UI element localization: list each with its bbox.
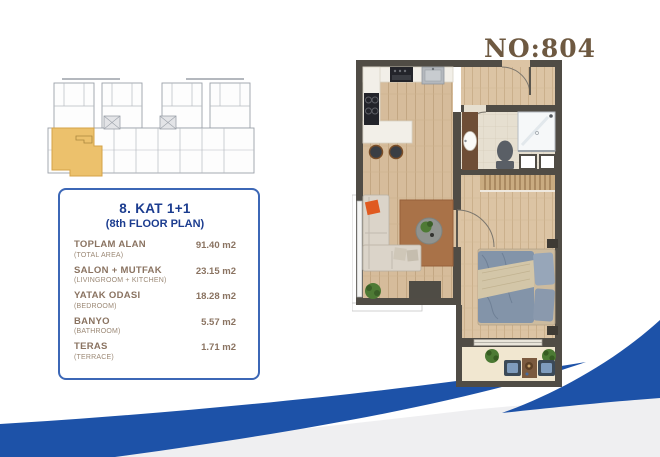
gray-wave xyxy=(0,397,660,457)
area-value: 91.40 m2 xyxy=(196,239,236,259)
tv-unit xyxy=(409,281,441,298)
area-sublabel: (TERRACE) xyxy=(74,354,114,361)
area-sublabel: (TOTAL AREA) xyxy=(74,252,146,259)
area-row-bedroom: YATAK ODASI (BEDROOM) 18.28 m2 xyxy=(74,290,236,310)
card-subtitle: (8th FLOOR PLAN) xyxy=(74,218,236,230)
cooktop xyxy=(364,93,379,125)
orange-pillow xyxy=(365,200,380,215)
shower xyxy=(518,112,555,151)
area-sublabel: (LIVINGROOM + KITCHEN) xyxy=(74,277,167,284)
area-value: 23.15 m2 xyxy=(196,265,236,285)
area-label: YATAK ODASI xyxy=(74,290,140,301)
sofa-pillow xyxy=(407,249,419,261)
bed-pillow xyxy=(533,288,555,321)
area-value: 18.28 m2 xyxy=(196,290,236,310)
nightstand xyxy=(547,326,558,335)
card-title: 8. KAT 1+1 xyxy=(74,201,236,216)
area-label: SALON + MUTFAK xyxy=(74,265,167,276)
area-value: 5.57 m2 xyxy=(201,316,236,336)
area-sublabel: (BATHROOM) xyxy=(74,328,121,335)
living-window xyxy=(357,201,362,297)
highlighted-unit xyxy=(52,128,102,176)
kitchen-sink xyxy=(422,67,444,84)
sofa-pillow xyxy=(393,247,407,261)
bathroom-vanity xyxy=(462,112,478,170)
info-card: 8. KAT 1+1 (8th FLOOR PLAN) TOPLAM ALAN … xyxy=(58,188,260,380)
page-root: 8. KAT 1+1 (8th FLOOR PLAN) TOPLAM ALAN … xyxy=(0,0,660,457)
area-label: TERAS xyxy=(74,341,114,352)
terrace-plant xyxy=(485,349,499,363)
area-label: TOPLAM ALAN xyxy=(74,239,146,250)
bed xyxy=(478,249,555,325)
area-row-living-kitchen: SALON + MUTFAK (LIVINGROOM + KITCHEN) 23… xyxy=(74,265,236,285)
toilet xyxy=(496,141,514,170)
terrace-chair xyxy=(504,360,521,376)
terrace-mat xyxy=(522,358,537,378)
terrace-chair xyxy=(538,360,555,376)
area-sublabel: (BEDROOM) xyxy=(74,303,140,310)
area-value: 1.71 m2 xyxy=(201,341,236,361)
area-label: BANYO xyxy=(74,316,121,327)
wardrobe xyxy=(480,175,555,192)
nightstand xyxy=(547,239,558,248)
terrace-sliding-door xyxy=(474,340,542,346)
bed-pillow xyxy=(533,252,555,285)
floor-plan xyxy=(352,55,572,387)
area-row-terrace: TERAS (TERRACE) 1.71 m2 xyxy=(74,341,236,361)
floor-plant xyxy=(365,283,381,299)
oven xyxy=(390,67,413,82)
area-row-total: TOPLAM ALAN (TOTAL AREA) 91.40 m2 xyxy=(74,239,236,259)
area-row-bathroom: BANYO (BATHROOM) 5.57 m2 xyxy=(74,316,236,336)
key-plan xyxy=(40,76,265,188)
ottoman-table xyxy=(416,218,442,244)
